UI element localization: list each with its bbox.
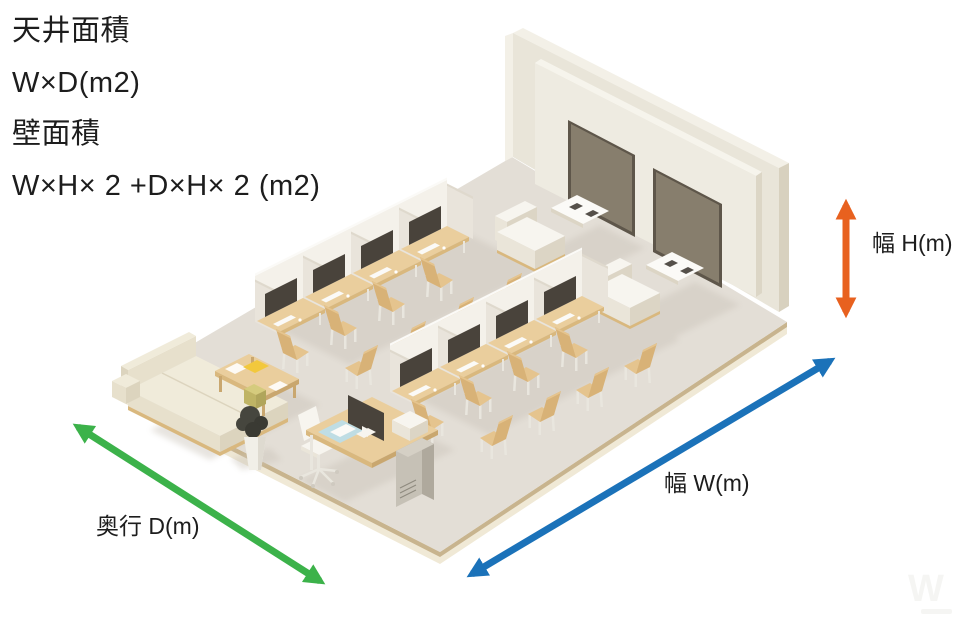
depth-dimension-label: 奥行 D(m) <box>96 507 199 541</box>
ceiling-area-formula: W×D(m2) <box>12 58 320 110</box>
height-dimension-label: 幅 H(m) <box>872 224 952 258</box>
wall-area-formula: W×H× 2 +D×H× 2 (m2) <box>12 161 320 213</box>
watermark-caption <box>921 609 952 614</box>
wall-area-title: 壁面積 <box>12 109 320 161</box>
width-dimension-label: 幅 W(m) <box>664 464 750 498</box>
room-area-diagram: 天井面積 W×D(m2) 壁面積 W×H× 2 +D×H× 2 (m2) 幅 H… <box>0 0 972 631</box>
area-formula-block: 天井面積 W×D(m2) 壁面積 W×H× 2 +D×H× 2 (m2) <box>12 6 320 212</box>
ceiling-area-title: 天井面積 <box>12 6 320 58</box>
watermark-logo: W <box>908 570 944 608</box>
